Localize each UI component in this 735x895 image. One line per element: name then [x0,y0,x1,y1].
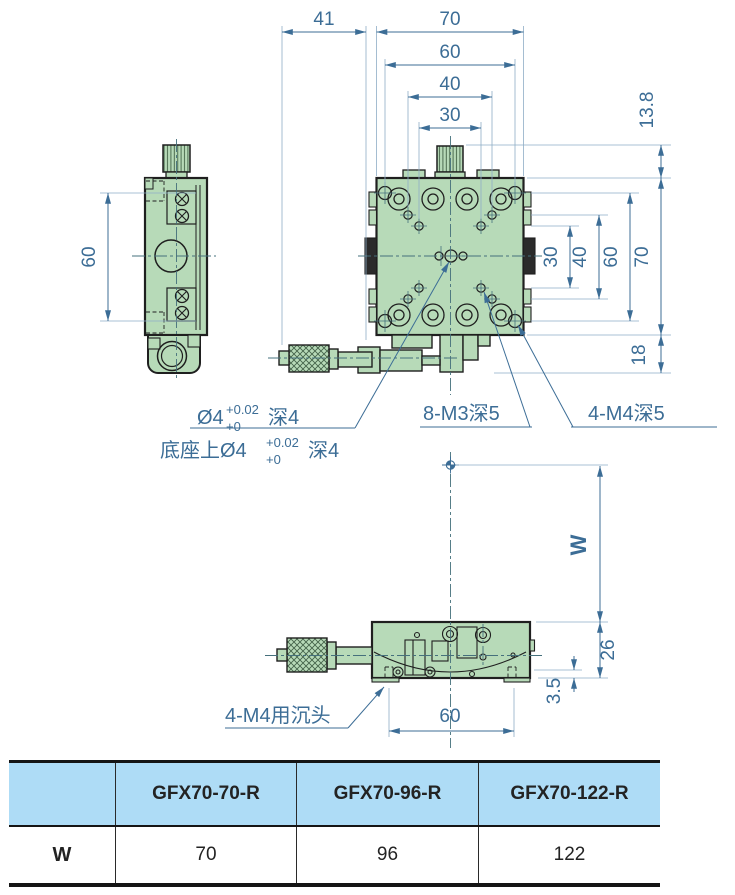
spec-header-blank [9,763,115,825]
hole-note2-suffix: 深4 [308,439,339,462]
bottom-view [277,622,535,682]
hole-note1-tol-lower: +0 [226,419,241,434]
spec-value-w-3: 122 [478,827,660,883]
hole-note2-tol-upper: +0.02 [266,435,299,450]
spec-header-model-3: GFX70-122-R [478,763,660,825]
spec-header-model-1: GFX70-70-R [115,763,296,825]
dim-top-41: 41 [313,9,334,30]
dim-right-40: 40 [570,246,591,267]
dim-left-60: 60 [79,246,100,267]
dim-right-13-8: 13.8 [637,92,658,129]
side-bottom-bracket [167,288,196,321]
hole-note1-tol-upper: +0.02 [226,402,259,417]
hole-note2-prefix: 底座上Ø4 [160,439,247,462]
spec-table-header-row: GFX70-70-R GFX70-96-R GFX70-122-R [9,763,660,827]
spec-value-w-2: 96 [296,827,478,883]
dim-top-30: 30 [439,105,460,126]
spec-table-data-row: W 70 96 122 [9,827,660,883]
goniometer-stage-drawing: 41 70 60 40 30 13.8 70 60 40 30 18 60 W … [0,0,735,895]
dim-bottom-3-5: 3.5 [544,678,565,704]
front-plate [377,178,524,335]
side-top-bracket [167,191,196,224]
dim-right-18: 18 [629,344,650,365]
drawing-canvas: 41 70 60 40 30 13.8 70 60 40 30 18 60 W … [0,0,735,755]
m4-note: 4-M4深5 [588,402,665,425]
dim-right-60: 60 [601,246,622,267]
side-view [145,145,207,373]
bottom-micrometer [277,638,372,672]
m4-counterbore-note: 4-M4用沉头 [225,704,331,727]
dim-bottom-26: 26 [598,639,619,660]
front-micrometer-knurl [289,345,329,372]
front-micrometer [279,345,440,373]
dim-bottom-60: 60 [439,706,460,727]
front-knob-knurl [437,146,463,172]
spec-header-model-2: GFX70-96-R [296,763,478,825]
spec-table: GFX70-70-R GFX70-96-R GFX70-122-R W 70 9… [9,760,660,887]
spec-row-label-w: W [9,827,115,883]
dim-top-40: 40 [439,74,460,95]
spec-value-w-1: 70 [115,827,296,883]
dim-right-70: 70 [632,246,653,267]
dim-top-60: 60 [439,42,460,63]
hole-note2-tol-lower: +0 [266,452,281,467]
bottom-micrometer-knurl [287,638,327,672]
dim-top-70: 70 [439,9,460,30]
dim-bottom-w: W [566,534,591,555]
m3-note: 8-M3深5 [423,402,500,425]
hole-note1-prefix: Ø4 [197,407,224,429]
hole-note1-suffix: 深4 [268,406,299,429]
dim-right-30: 30 [541,246,562,267]
front-view [279,146,535,373]
